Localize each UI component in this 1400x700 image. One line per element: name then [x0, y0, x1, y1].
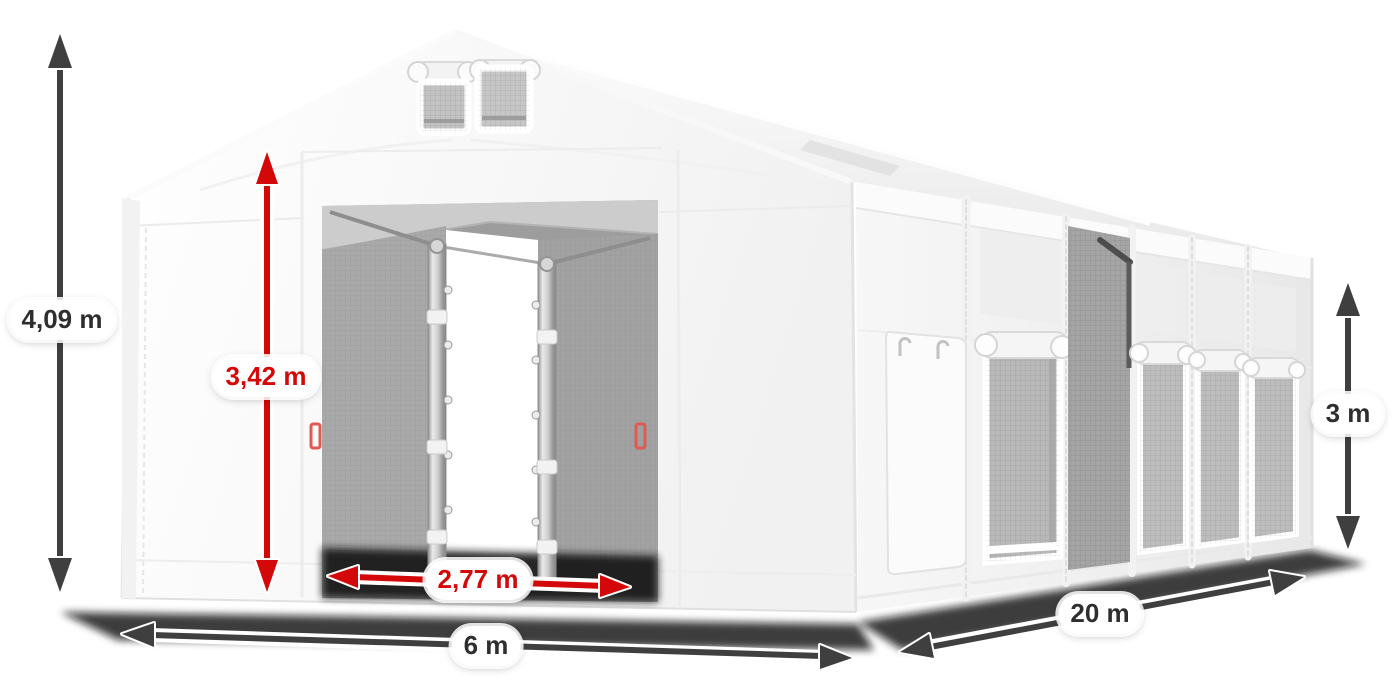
dimension-label-door-height: 3,42 m — [214, 357, 319, 397]
dimension-label-side-length: 20 m — [1058, 594, 1141, 634]
dimension-label-total-height: 4,09 m — [10, 300, 115, 340]
side-window-4 — [1243, 358, 1305, 540]
door-rear-opening — [446, 230, 538, 592]
gable-vent-right — [470, 60, 540, 130]
side-window-3 — [1189, 350, 1251, 546]
product-dimension-diagram: 4,09 m 3,42 m 2,77 m 6 m 20 m 3 m — [0, 0, 1400, 700]
dimension-label-door-width: 2,77 m — [426, 560, 531, 600]
side-window-1 — [975, 332, 1073, 562]
side-door-flap — [886, 332, 966, 574]
gable-vent-left — [408, 62, 478, 132]
dimension-label-front-width: 6 m — [452, 626, 521, 666]
side-window-2 — [1130, 342, 1196, 552]
door-opening — [311, 200, 658, 602]
side-entrance-mesh — [1068, 226, 1130, 570]
tent-illustration — [0, 0, 1400, 700]
dimension-label-side-height: 3 m — [1314, 394, 1383, 434]
